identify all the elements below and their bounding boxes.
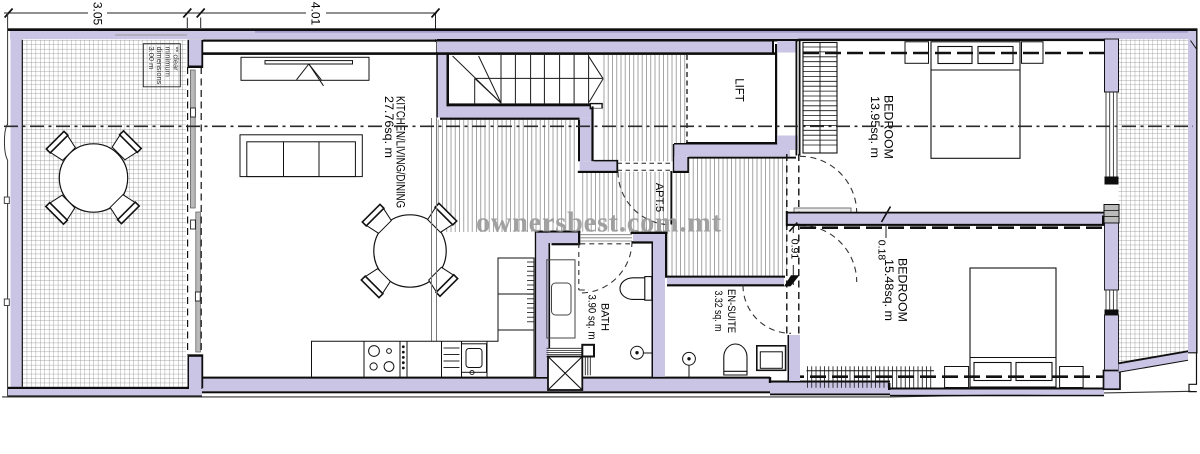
svg-text:3.00 m: 3.00 m [147,47,156,70]
svg-text:dimensions: dimensions [155,47,164,85]
svg-text:3.05: 3.05 [91,2,105,26]
svg-text:ownersbest.com.mt: ownersbest.com.mt [476,208,722,239]
svg-text:** clear: ** clear [172,47,181,72]
svg-text:0.18: 0.18 [876,240,888,261]
svg-text:EN-SUITE3.32 sq. m: EN-SUITE3.32 sq. m [712,289,737,333]
svg-text:4.01: 4.01 [309,2,323,26]
svg-text:0.91: 0.91 [789,239,801,260]
svg-text:BEDROOM15.48sq. m: BEDROOM15.48sq. m [882,258,908,322]
svg-text:minimum: minimum [163,47,172,77]
svg-text:LIFT: LIFT [733,78,745,102]
